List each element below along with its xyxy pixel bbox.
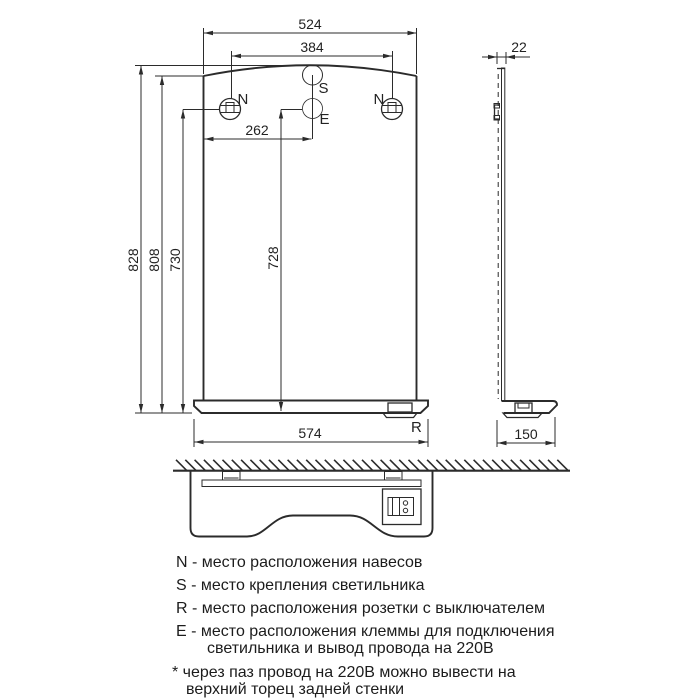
- arrowhead: [232, 54, 241, 58]
- hatch-stroke: [436, 460, 447, 471]
- legend-line-e: E - место расположения клеммы для подклю…: [176, 623, 592, 640]
- hatch-stroke: [557, 460, 568, 471]
- dimension-label: 384: [300, 39, 324, 55]
- legend-line-n: N - место расположения навесов: [176, 554, 592, 571]
- hatch-stroke: [232, 460, 243, 471]
- lamp-label: S: [319, 80, 329, 97]
- hatch-stroke: [474, 460, 485, 471]
- hanger-bracket-plan-right: [385, 472, 403, 481]
- hatch-stroke: [176, 460, 187, 471]
- dimension-depth: 150: [497, 417, 555, 447]
- cabinet-plan-outline: [191, 471, 433, 537]
- hatch-stroke: [343, 460, 354, 471]
- hatch-stroke: [390, 460, 401, 471]
- dimension-hanger-span: 384: [232, 39, 392, 58]
- hatch-stroke: [185, 460, 196, 471]
- dimension-height-total: 828: [125, 66, 143, 414]
- arrowhead: [139, 66, 143, 75]
- socket-label: R: [411, 419, 422, 436]
- hatch-stroke: [446, 460, 457, 471]
- back-rail: [202, 480, 421, 487]
- arrowhead: [160, 404, 164, 413]
- legend: N - место расположения навесов S - место…: [172, 554, 592, 698]
- technical-drawing-page: N N S E R 524 384: [0, 0, 700, 700]
- hanger-marker-right: [382, 99, 403, 120]
- hanger-plate: [226, 103, 234, 113]
- hatch-stroke: [297, 460, 308, 471]
- arrowhead: [139, 404, 143, 413]
- dimension-label: 574: [298, 425, 322, 441]
- dimension-width-top: 524: [204, 16, 417, 35]
- hatch-stroke: [464, 460, 475, 471]
- front-view: N N S E R 524 384: [125, 16, 428, 447]
- hatch-stroke: [195, 460, 206, 471]
- hatch-stroke: [381, 460, 392, 471]
- dimension-label: 808: [146, 248, 162, 272]
- side-view: 22 150: [482, 39, 557, 447]
- section-view: [173, 460, 570, 537]
- socket-inner: [388, 498, 414, 516]
- hatch-stroke: [427, 460, 438, 471]
- arrowhead: [204, 31, 213, 35]
- hanger-plate: [388, 103, 396, 113]
- hatch-stroke: [334, 460, 345, 471]
- arrowhead: [303, 137, 312, 141]
- arrowhead: [205, 137, 214, 141]
- legend-note-cont: верхний торец задней стенки: [186, 681, 592, 698]
- legend-line-s: S - место крепления светильника: [176, 577, 592, 594]
- dimension-label: 728: [265, 246, 281, 270]
- hatch-stroke: [250, 460, 261, 471]
- side-hanger-bracket: [494, 104, 500, 121]
- hanger-bracket-plan-left: [223, 472, 241, 481]
- hatch-stroke: [399, 460, 410, 471]
- dimension-thickness: 22: [482, 39, 530, 64]
- hatch-stroke: [260, 460, 271, 471]
- hatch-stroke: [418, 460, 429, 471]
- hatch-stroke: [492, 460, 503, 471]
- socket-front: [388, 403, 412, 412]
- arrowhead: [181, 110, 185, 119]
- hatch-stroke: [539, 460, 550, 471]
- hatch-stroke: [316, 460, 327, 471]
- dimension-label: 22: [511, 39, 527, 55]
- hanger-circle: [382, 99, 403, 120]
- dimension-height-hanger: 730: [167, 110, 185, 414]
- arrowhead: [408, 31, 417, 35]
- arrowhead: [506, 55, 515, 59]
- hatch-stroke: [502, 460, 513, 471]
- hatch-stroke: [288, 460, 299, 471]
- terminal-half-left: [303, 99, 313, 119]
- socket-side-detail: [518, 403, 529, 408]
- dimension-label: 150: [514, 426, 538, 442]
- socket-hole: [403, 508, 407, 512]
- arrowhead: [279, 110, 283, 119]
- hatch-stroke: [278, 460, 289, 471]
- legend-line-r: R - место расположения розетки с выключа…: [176, 600, 592, 617]
- side-panel-edge: [502, 68, 505, 401]
- hatch-stroke: [213, 460, 224, 471]
- hatch-stroke: [455, 460, 466, 471]
- hatch-stroke: [371, 460, 382, 471]
- hatch-stroke: [223, 460, 234, 471]
- mirror-top-arc: [204, 65, 417, 76]
- arrowhead: [279, 402, 283, 411]
- socket-plan: [383, 489, 422, 525]
- dimension-label: 730: [167, 248, 183, 272]
- arrowhead: [383, 54, 392, 58]
- hatch-stroke: [548, 460, 559, 471]
- legend-line-e-cont: светильника и вывод провода на 220В: [207, 640, 592, 657]
- arrowhead: [160, 76, 164, 85]
- dimension-height-terminal: 728: [265, 110, 283, 412]
- arrowhead: [195, 440, 204, 444]
- hatch-stroke: [325, 460, 336, 471]
- wall-hatching: [176, 460, 568, 471]
- arrowhead: [498, 441, 507, 445]
- dimension-label: 262: [245, 122, 269, 138]
- hanger-right-label: N: [374, 91, 385, 108]
- arrowhead: [181, 404, 185, 413]
- dimension-label: 828: [125, 248, 141, 272]
- dimension-center-offset: 262: [205, 122, 312, 141]
- dimension-width-shelf: 574: [195, 425, 428, 444]
- hatch-stroke: [409, 460, 420, 471]
- terminal-label: E: [320, 111, 330, 128]
- socket-hole: [403, 501, 407, 505]
- hatch-stroke: [306, 460, 317, 471]
- legend-note: * через паз провод на 220В можно вывести…: [172, 664, 592, 681]
- hatch-stroke: [511, 460, 522, 471]
- arrowhead: [419, 440, 428, 444]
- hatch-stroke: [353, 460, 364, 471]
- dimension-label: 524: [298, 16, 322, 32]
- hatch-stroke: [204, 460, 215, 471]
- hatch-stroke: [520, 460, 531, 471]
- hatch-stroke: [483, 460, 494, 471]
- dimension-height-side: 808: [146, 76, 164, 413]
- hatch-stroke: [529, 460, 540, 471]
- hatch-stroke: [241, 460, 252, 471]
- arrowhead: [488, 55, 497, 59]
- hatch-stroke: [362, 460, 373, 471]
- hatch-stroke: [269, 460, 280, 471]
- hanger-left-label: N: [238, 91, 249, 108]
- arrowhead: [546, 441, 555, 445]
